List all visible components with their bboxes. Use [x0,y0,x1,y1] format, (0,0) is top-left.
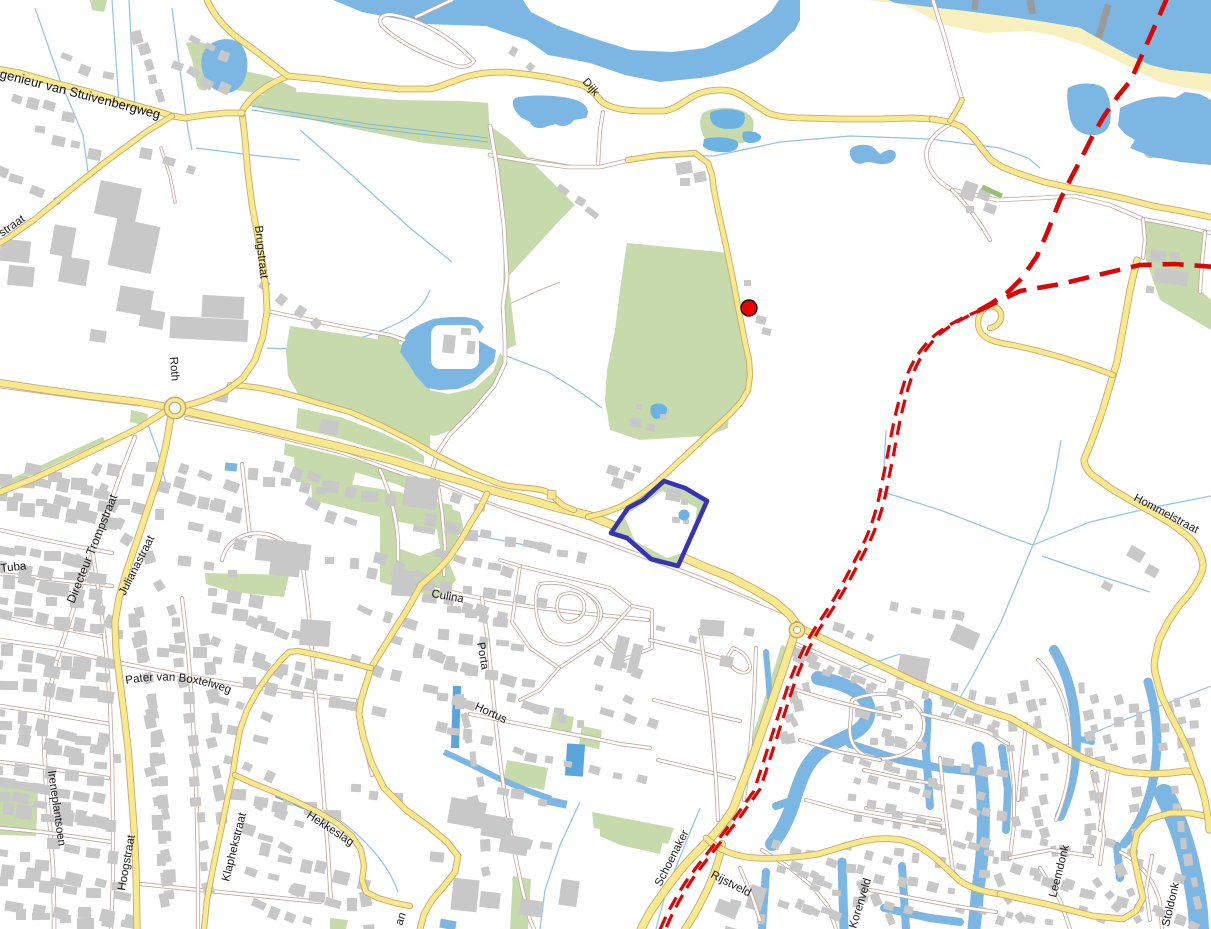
svg-text:Roth: Roth [167,356,181,381]
